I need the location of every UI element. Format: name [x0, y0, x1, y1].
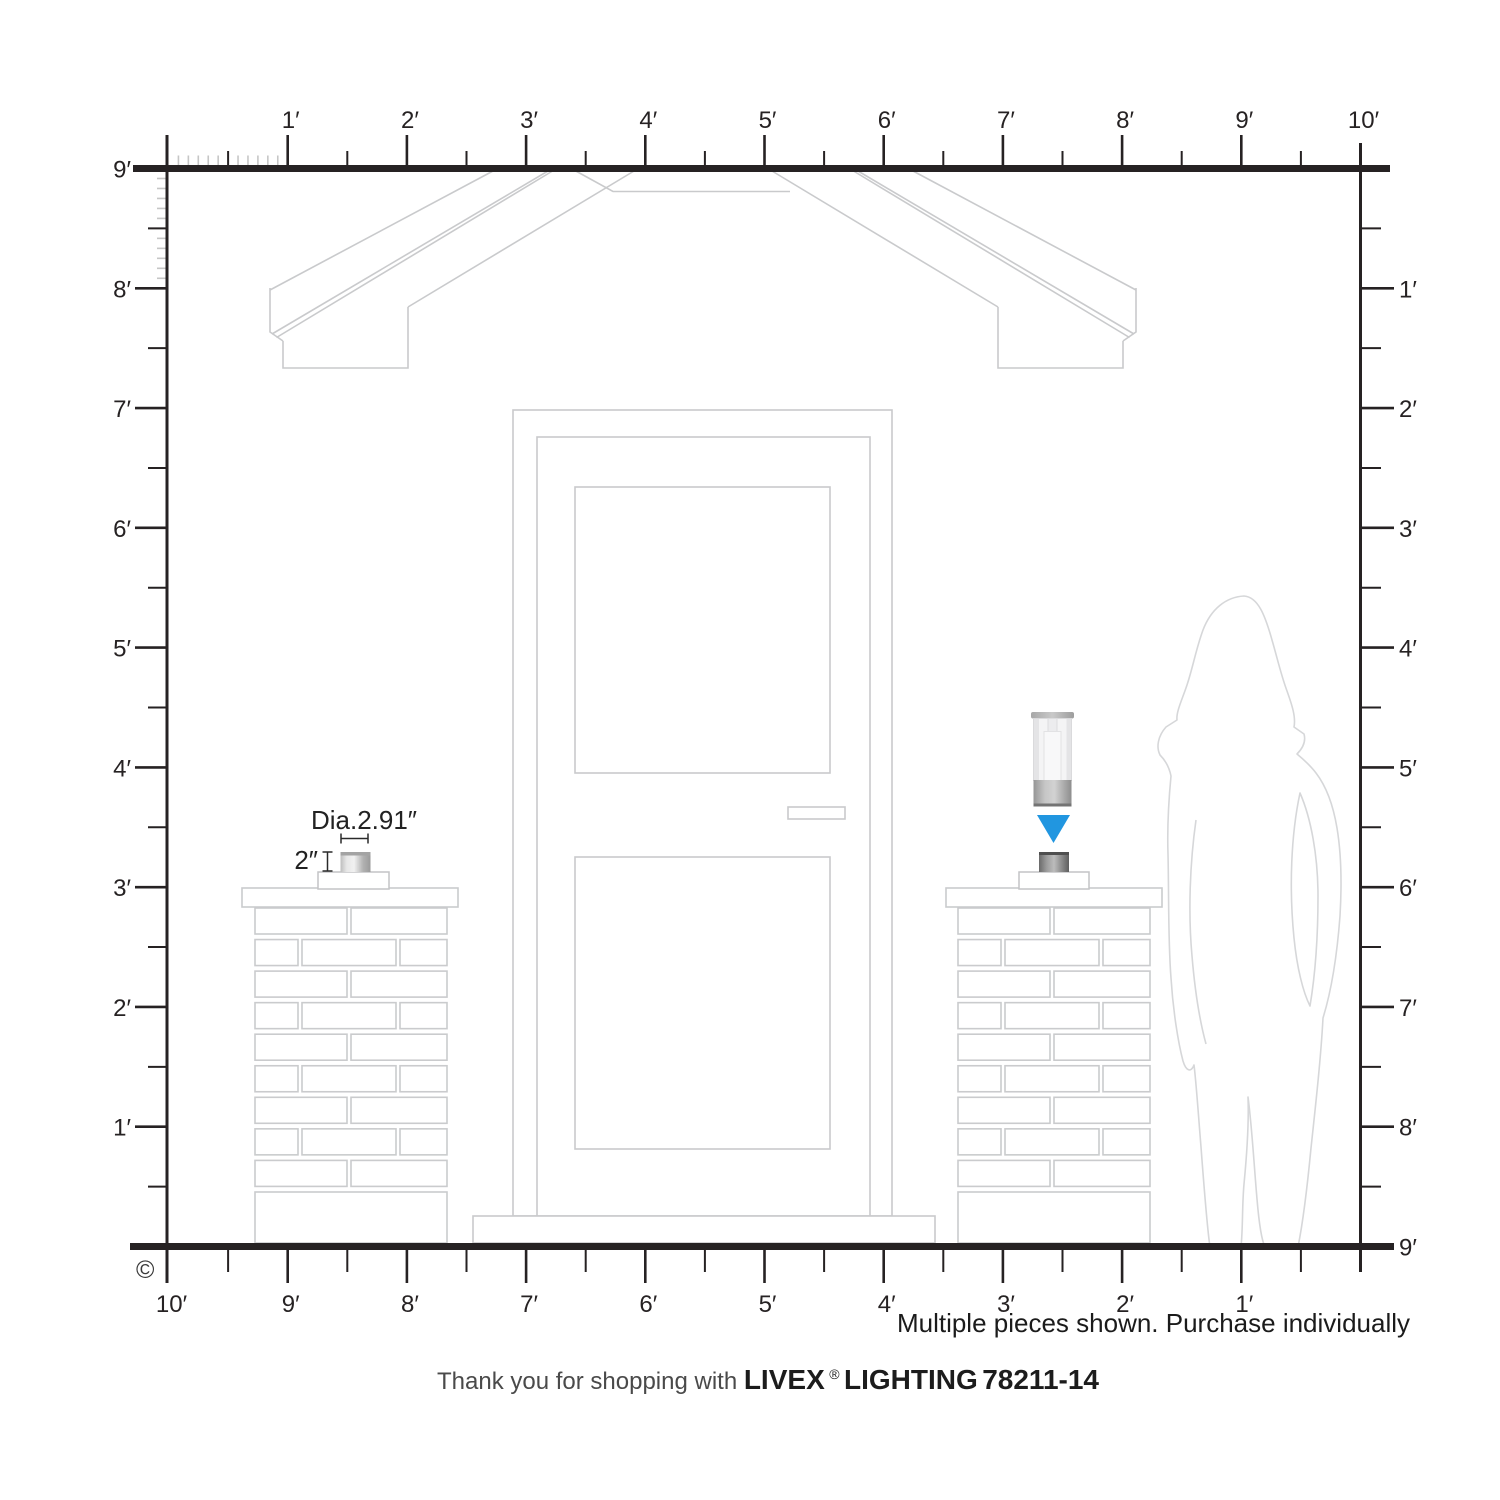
door-handle: [788, 807, 845, 819]
left-fixture-top: [341, 852, 371, 856]
footer-brand-line: Thank you for shopping with LIVEX ® LIGH…: [437, 1364, 1099, 1395]
brick: [958, 1129, 1001, 1155]
door-upper-panel: [575, 487, 830, 773]
brick: [351, 1160, 447, 1186]
brick: [1054, 1097, 1150, 1123]
height-bracket: [323, 852, 333, 871]
brick: [1103, 1066, 1150, 1092]
brick: [958, 908, 1050, 934]
roof-left-slope: [270, 171, 634, 368]
left-ruler-label: 1′: [113, 1115, 131, 1142]
brick: [351, 908, 447, 934]
height-label: 2″: [294, 845, 318, 875]
purchase-note: Multiple pieces shown. Purchase individu…: [897, 1308, 1410, 1338]
right-ruler-label: 4′: [1399, 636, 1417, 663]
left-ruler-label: 3′: [113, 875, 131, 902]
sku-number: 78211-14: [982, 1364, 1099, 1395]
right-ruler-label: 8′: [1399, 1115, 1417, 1142]
brick: [351, 1097, 447, 1123]
right-ruler-line: [1359, 143, 1362, 1272]
brick: [1054, 1160, 1150, 1186]
brick: [302, 940, 396, 966]
bottom-ruler-label: 10′: [156, 1291, 188, 1318]
bottom-ruler-label: 9′: [282, 1291, 300, 1318]
brick: [1054, 971, 1150, 997]
diameter-label: Dia.2.91″: [311, 805, 417, 835]
brick: [958, 940, 1001, 966]
brand-suffix: LIGHTING: [844, 1364, 978, 1395]
right-ruler-label: 5′: [1399, 755, 1417, 782]
fixture-base-rim: [1034, 804, 1072, 807]
bottom-ruler-bar: [130, 1243, 1394, 1250]
fixture-top-cap: [1031, 712, 1074, 719]
brick: [1005, 1129, 1099, 1155]
left-ruler-label: 6′: [113, 516, 131, 543]
right-ruler-label: 9′: [1399, 1235, 1417, 1262]
brick: [302, 1066, 396, 1092]
brick: [1103, 1003, 1150, 1029]
brick: [255, 1003, 298, 1029]
right-ruler-label: 6′: [1399, 875, 1417, 902]
roof-ridge: [574, 170, 790, 192]
brick: [351, 1034, 447, 1060]
bottom-ruler-label: 5′: [759, 1291, 777, 1318]
right-fixture-top: [1039, 852, 1069, 855]
scale-diagram-page: Dia.2.91″ 2″ 1′2′3′4′5′6′7′8′9′10′9′8′7′…: [0, 0, 1500, 1500]
pillar-base-block: [958, 1192, 1150, 1243]
top-ruler-label: 8′: [1116, 107, 1134, 134]
brick: [1054, 908, 1150, 934]
left-ruler-label: 8′: [113, 276, 131, 303]
brand-name: LIVEX: [744, 1364, 825, 1395]
brick: [255, 940, 298, 966]
roof-right-slope: [772, 171, 1136, 368]
top-ruler-label: 3′: [520, 107, 538, 134]
bottom-ruler-label: 8′: [401, 1291, 419, 1318]
copyright-mark: ©: [136, 1256, 155, 1284]
brick: [400, 1129, 447, 1155]
brick: [302, 1129, 396, 1155]
door: [473, 410, 935, 1243]
top-ruler-label: 10′: [1348, 107, 1380, 134]
brick: [351, 971, 447, 997]
brick: [255, 1034, 347, 1060]
brick: [255, 971, 347, 997]
left-ruler-label: 9′: [113, 157, 131, 184]
door-lower-panel: [575, 857, 830, 1149]
left-fixture-pedestal: [318, 872, 389, 889]
brick: [1005, 1066, 1099, 1092]
brick: [255, 1097, 347, 1123]
brick: [400, 940, 447, 966]
brick: [302, 1003, 396, 1029]
top-ruler-label: 5′: [759, 107, 777, 134]
brick: [255, 1160, 347, 1186]
pillar-base-block: [255, 1192, 447, 1243]
right-ruler-label: 2′: [1399, 396, 1417, 423]
top-ruler-label: 2′: [401, 107, 419, 134]
brick: [1005, 940, 1099, 966]
top-ruler-label: 1′: [282, 107, 300, 134]
door-step: [473, 1216, 935, 1243]
scale-diagram-canvas: Dia.2.91″ 2″ 1′2′3′4′5′6′7′8′9′10′9′8′7′…: [0, 0, 1500, 1500]
right-ruler-label: 1′: [1399, 276, 1417, 303]
down-triangle-pointer-icon: [1037, 815, 1070, 843]
brick: [1005, 1003, 1099, 1029]
woman-silhouette: [1158, 596, 1341, 1247]
top-ruler-label: 6′: [878, 107, 896, 134]
fixture-glass-shade-right: [1067, 719, 1072, 780]
fixture-glass-shade-left: [1034, 719, 1039, 780]
left-ruler-label: 4′: [113, 755, 131, 782]
brick: [1054, 1034, 1150, 1060]
thanks-text: Thank you for shopping with: [437, 1368, 744, 1395]
brick: [958, 1003, 1001, 1029]
brick: [255, 908, 347, 934]
brick: [958, 1160, 1050, 1186]
brick: [1103, 1129, 1150, 1155]
diameter-bracket: [341, 834, 368, 844]
brick: [958, 971, 1050, 997]
brick: [958, 1066, 1001, 1092]
left-ruler-label: 5′: [113, 636, 131, 663]
top-ruler-bar: [133, 165, 1390, 172]
top-ruler-label: 4′: [639, 107, 657, 134]
fixture-base: [1034, 780, 1072, 804]
fixture-candle: [1044, 732, 1061, 781]
brick: [400, 1003, 447, 1029]
brick: [255, 1066, 298, 1092]
registered-mark: ®: [829, 1366, 840, 1382]
brick: [400, 1066, 447, 1092]
left-ruler-label: 2′: [113, 995, 131, 1022]
right-ruler-label: 7′: [1399, 995, 1417, 1022]
right-fixture: [1019, 852, 1089, 889]
brick: [958, 1097, 1050, 1123]
bottom-ruler-label: 6′: [639, 1291, 657, 1318]
top-ruler-label: 9′: [1235, 107, 1253, 134]
brick: [255, 1129, 298, 1155]
brick: [958, 1034, 1050, 1060]
silhouette-outline: [1158, 596, 1341, 1247]
enlarged-fixture: [1031, 712, 1074, 807]
right-ruler-label: 3′: [1399, 516, 1417, 543]
fixture-inner-tube: [1048, 719, 1057, 733]
right-fixture-pedestal: [1019, 872, 1089, 889]
left-ruler-line: [166, 135, 169, 1283]
top-ruler-label: 7′: [997, 107, 1015, 134]
left-ruler-label: 7′: [113, 396, 131, 423]
left-pillar-cap: [242, 888, 458, 907]
bottom-ruler-label: 4′: [878, 1291, 896, 1318]
brick: [1103, 940, 1150, 966]
right-pillar-cap: [946, 888, 1162, 907]
bottom-ruler-label: 7′: [520, 1291, 538, 1318]
